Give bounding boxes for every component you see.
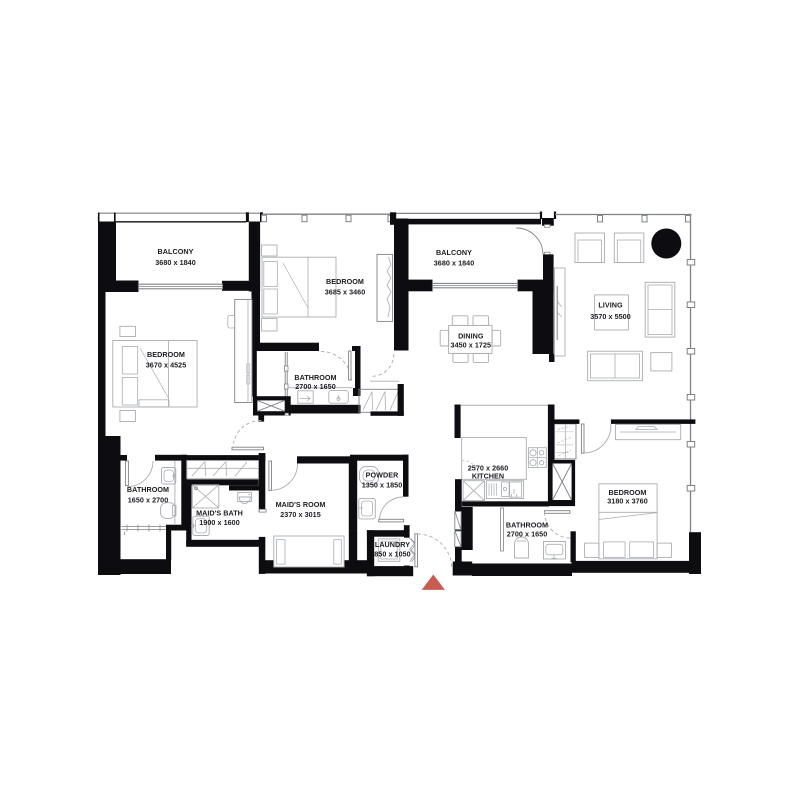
svg-text:1350 x 1850: 1350 x 1850	[362, 481, 403, 490]
svg-text:BEDROOM: BEDROOM	[326, 277, 364, 286]
svg-text:BALCONY: BALCONY	[436, 248, 472, 257]
svg-text:KITCHEN: KITCHEN	[472, 472, 504, 481]
svg-text:3680 x 1840: 3680 x 1840	[434, 259, 475, 268]
svg-text:LAUNDRY: LAUNDRY	[375, 540, 410, 549]
svg-text:3680 x 1840: 3680 x 1840	[155, 258, 196, 267]
svg-text:MAID'S ROOM: MAID'S ROOM	[276, 500, 326, 509]
svg-text:BEDROOM: BEDROOM	[147, 350, 185, 359]
svg-text:2700 x 1650: 2700 x 1650	[295, 382, 336, 391]
svg-text:1650 x 2700: 1650 x 2700	[128, 496, 169, 505]
svg-text:BALCONY: BALCONY	[158, 247, 194, 256]
svg-text:LIVING: LIVING	[598, 301, 623, 310]
svg-text:DINING: DINING	[458, 331, 484, 340]
svg-text:3685 x 3460: 3685 x 3460	[325, 288, 366, 297]
svg-text:2370 x 3015: 2370 x 3015	[280, 510, 321, 519]
svg-text:3450 x 1725: 3450 x 1725	[451, 340, 492, 349]
svg-text:BATHROOM: BATHROOM	[506, 521, 548, 530]
svg-text:3670 x 4525: 3670 x 4525	[146, 361, 187, 370]
svg-text:BATHROOM: BATHROOM	[294, 373, 336, 382]
svg-text:3180 x 3760: 3180 x 3760	[607, 497, 648, 506]
svg-text:BATHROOM: BATHROOM	[127, 485, 169, 494]
svg-text:850 x 1050: 850 x 1050	[374, 550, 410, 559]
svg-text:3570 x 5500: 3570 x 5500	[590, 312, 631, 321]
svg-text:1900 x 1600: 1900 x 1600	[199, 518, 240, 527]
svg-text:2700 x 1650: 2700 x 1650	[507, 530, 548, 539]
svg-text:MAID'S BATH: MAID'S BATH	[196, 509, 243, 518]
svg-text:POWDER: POWDER	[366, 471, 399, 480]
